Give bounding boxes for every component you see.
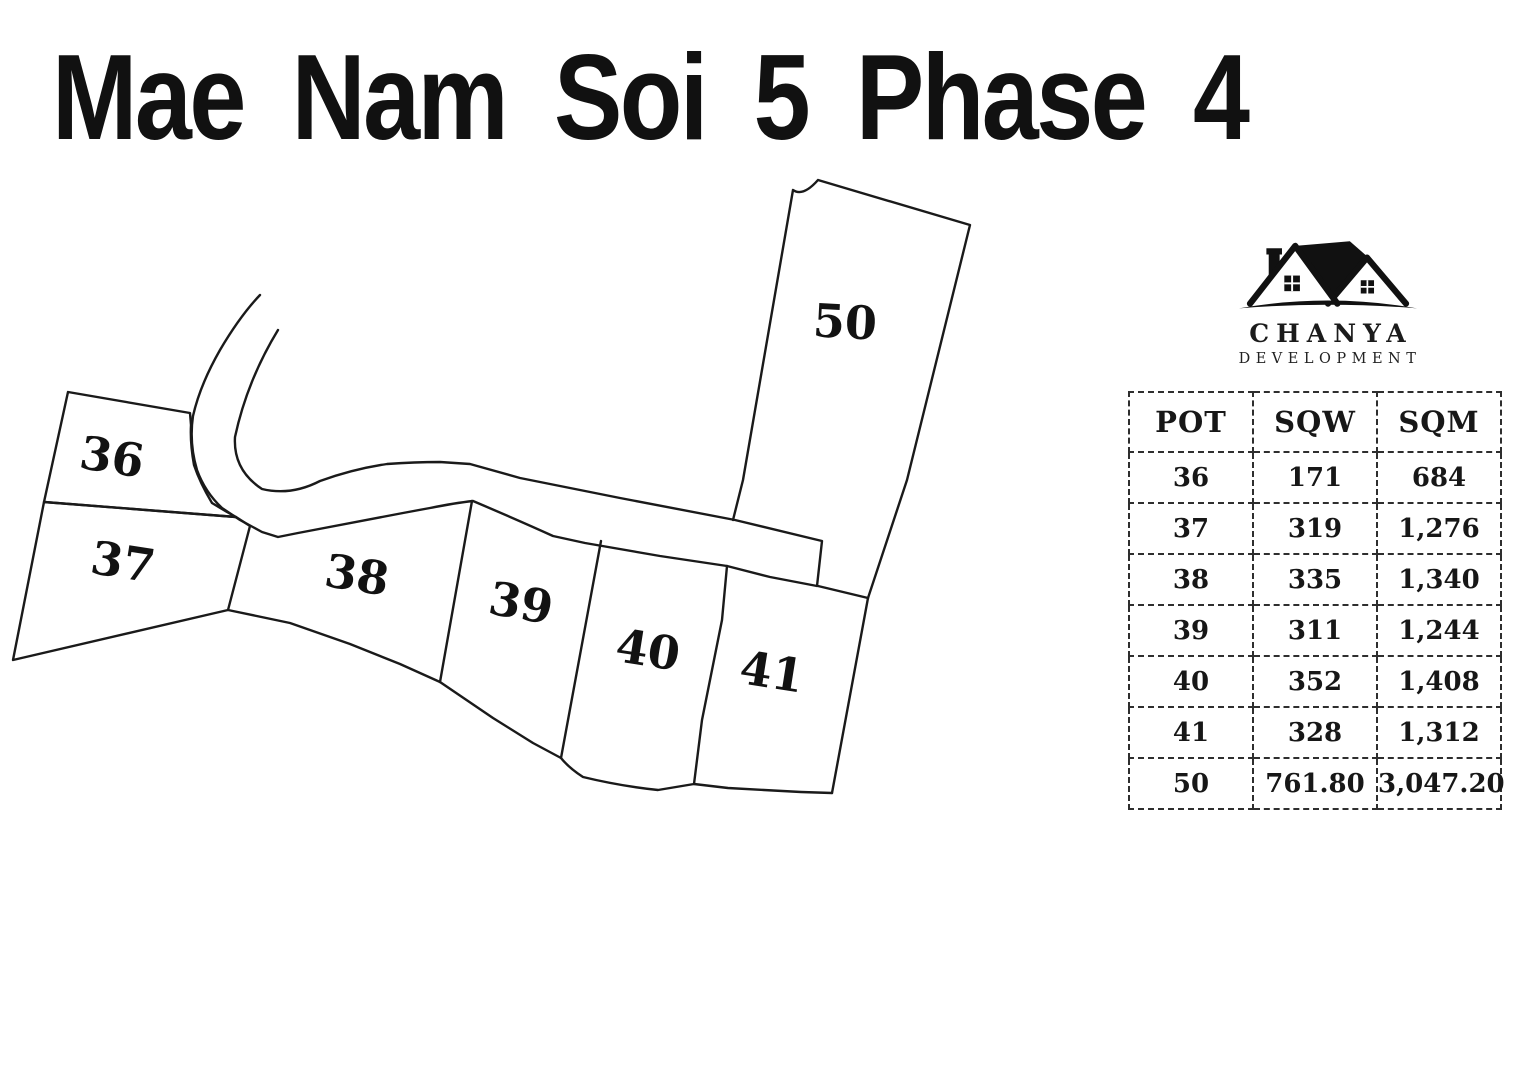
plot-36-label: 36 [76,425,148,488]
plot-50-label: 50 [812,293,879,350]
table-row: 39 311 1,244 [1129,605,1501,656]
cell-sqw: 335 [1253,554,1377,605]
cell-pot: 40 [1129,656,1253,707]
cell-pot: 41 [1129,707,1253,758]
cell-sqw: 311 [1253,605,1377,656]
plot-39-boundary [440,541,601,758]
header-sqw: SQW [1253,392,1377,452]
table-row: 41 328 1,312 [1129,707,1501,758]
plot-40-label: 40 [612,618,684,681]
table-row: 36 171 684 [1129,452,1501,503]
logo-subtitle-text: DEVELOPMENT [1205,351,1450,367]
cell-pot: 36 [1129,452,1253,503]
cell-sqm: 1,244 [1377,605,1501,656]
plot-38-label: 38 [321,543,393,606]
page: { "title": "Mae Nam Soi 5 Phase 4", "log… [0,0,1513,1082]
cell-sqm: 1,276 [1377,503,1501,554]
cell-sqw: 319 [1253,503,1377,554]
cell-pot: 50 [1129,758,1253,809]
plot-39-label: 39 [485,571,557,635]
plot-37-label: 37 [87,530,159,593]
table-row: 50 761.80 3,047.20 [1129,758,1501,809]
plot-40-boundary [561,566,727,790]
cell-sqw: 171 [1253,452,1377,503]
houses-icon [1212,235,1444,313]
table-row: 38 335 1,340 [1129,554,1501,605]
cell-sqm: 3,047.20 [1377,758,1501,809]
cell-sqm: 1,408 [1377,656,1501,707]
cell-pot: 37 [1129,503,1253,554]
cell-pot: 38 [1129,554,1253,605]
company-logo: CHANYA DEVELOPMENT [1205,235,1450,367]
plot-41-label: 41 [736,640,808,703]
plot-area-table: POT SQW SQM 36 171 684 37 319 1,276 38 3… [1128,391,1502,810]
cell-sqw: 761.80 [1253,758,1377,809]
cell-pot: 39 [1129,605,1253,656]
chimney-cap-shape [1266,248,1282,254]
table-row: 40 352 1,408 [1129,656,1501,707]
cell-sqm: 684 [1377,452,1501,503]
cell-sqw: 352 [1253,656,1377,707]
plot-50-boundary [733,180,970,793]
cell-sqm: 1,340 [1377,554,1501,605]
header-sqm: SQM [1377,392,1501,452]
cell-sqw: 328 [1253,707,1377,758]
header-pot: POT [1129,392,1253,452]
road-outline [192,295,822,586]
table-header-row: POT SQW SQM [1129,392,1501,452]
logo-brand-text: CHANYA [1205,319,1450,348]
table-row: 37 319 1,276 [1129,503,1501,554]
cell-sqm: 1,312 [1377,707,1501,758]
